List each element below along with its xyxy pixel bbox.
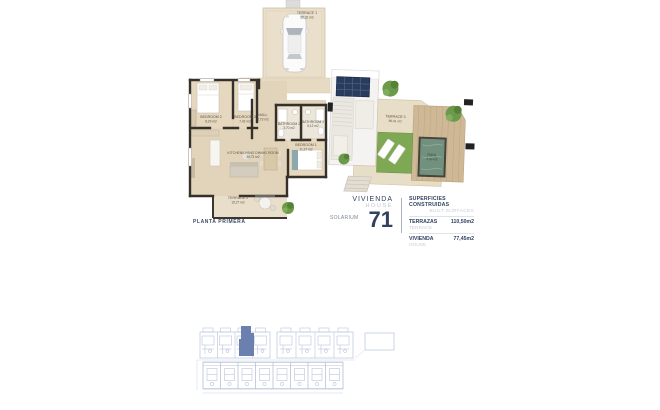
- house-title-es: VIVIENDA: [350, 196, 393, 203]
- bathroom1-area: 5,12 m2: [307, 124, 319, 128]
- terrace2-label: TERRACE 2: [228, 196, 248, 200]
- terrace3-area: 86,91 m2: [389, 119, 403, 123]
- table-row: VIVIENDA HOUSE 77,45m2: [409, 236, 474, 248]
- hall-label: HALL: [259, 113, 268, 117]
- table-row: TERRAZAS TERRACE 110,50m2: [409, 219, 474, 231]
- bedroom1-label: BEDROOM 1: [295, 143, 317, 147]
- pool-area: 6,86 m2: [427, 157, 438, 161]
- terrace1-area: 28,32 m2: [300, 15, 314, 19]
- table-rule: [409, 233, 474, 234]
- bedroom1-area: 11,27 m2: [299, 147, 312, 151]
- ac-unit: [328, 102, 333, 111]
- house-value: 77,45m2: [454, 236, 474, 242]
- siteplan-block-bottom: [203, 362, 343, 393]
- surfaces-table: SUPERFICIES CONSTRUIDAS BUILT SURFACES T…: [409, 196, 474, 248]
- bedroom2-area: 8,29 m2: [205, 119, 217, 123]
- title-divider: [401, 198, 402, 233]
- house-number: 71: [350, 210, 393, 231]
- house-title: VIVIENDA HOUSE 71: [350, 196, 393, 231]
- ac-unit: [465, 143, 474, 149]
- siteplan-parcel: [365, 333, 394, 350]
- bathroom2-area: 3,70 m2: [283, 126, 295, 130]
- car-icon: [281, 14, 309, 72]
- bedroom2-label: BEDROOM 2: [200, 115, 222, 119]
- terraces-value: 110,50m2: [451, 219, 474, 225]
- terrace1-label: TERRACE 1: [297, 11, 317, 15]
- surfaces-header-en: BUILT SURFACES: [409, 209, 474, 214]
- house-label-en: HOUSE: [409, 243, 434, 248]
- hall-area: 2,73 m2: [257, 117, 269, 121]
- highlighted-unit: [239, 326, 254, 356]
- terrace2-area: 15,27 m2: [231, 200, 245, 204]
- plan-sheet: TERRACE 1 28,32 m2 BEDROOM 2 8,29 m2 BED…: [0, 0, 660, 410]
- ac-unit: [464, 99, 473, 105]
- siteplan-block-topright: [277, 328, 353, 358]
- surfaces-header-es: SUPERFICIES CONSTRUIDAS: [409, 196, 474, 208]
- first-floor-plan: TERRACE 1 28,32 m2 BEDROOM 2 8,29 m2 BED…: [180, 0, 340, 232]
- solar-panel-icon: [336, 77, 370, 97]
- entry-steps: [344, 176, 372, 192]
- solarium-plan: TERRACE 3 86,91 m2 POOL 6,86 m2: [325, 60, 480, 202]
- bedroom3-area: 7,42 m2: [239, 119, 251, 123]
- house-label-es: VIVIENDA: [409, 236, 434, 242]
- table-rule: [409, 216, 474, 217]
- site-plan: [195, 320, 400, 402]
- terraces-label-en: TERRACE: [409, 226, 437, 231]
- floor-caption: PLANTA PRIMERA: [193, 219, 246, 225]
- plant-icon: [282, 202, 294, 214]
- plant-icon: [382, 80, 399, 97]
- grass-area: [377, 132, 413, 173]
- terraces-label-es: TERRAZAS: [409, 219, 437, 225]
- kitchen-area: 38,73 m2: [246, 155, 260, 159]
- bedroom3-label: BEDROOM 3: [234, 115, 256, 119]
- siteplan-block-topleft: [200, 328, 270, 358]
